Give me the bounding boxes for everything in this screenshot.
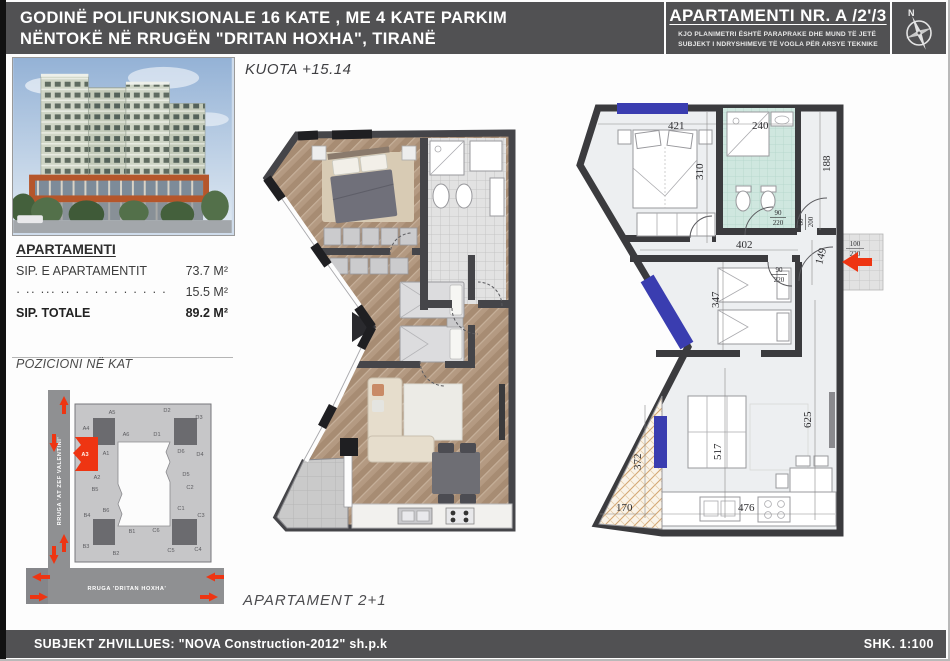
unit-label-B6: B6: [103, 508, 110, 514]
table-heading: APARTAMENTI: [16, 241, 228, 257]
area-row-balcony: · ·· ··· ·· · · · · · · · · · · 15.5 M²: [16, 285, 228, 299]
unit-label-A2: A2: [94, 475, 101, 481]
unit-label-B4: B4: [84, 513, 91, 519]
apartment-number: APARTAMENTI NR. A /2'/3: [669, 6, 886, 26]
compass: N: [892, 2, 946, 54]
street-label-vertical: RRUGA 'AT ZEF VALENTINI': [57, 437, 63, 526]
bathroom-3d: [426, 138, 506, 304]
footer-bar: SUBJEKT ZHVILLUES: "NOVA Construction-20…: [6, 630, 946, 658]
unit-label-A6: A6: [123, 432, 130, 438]
sheet-title: GODINË POLIFUNKSIONALE 16 KATE , ME 4 KA…: [6, 2, 664, 54]
apartment-type-label: APARTAMENT 2+1: [243, 592, 387, 609]
dim-bath-width: 240: [752, 120, 769, 132]
svg-text:100: 100: [850, 240, 861, 248]
disclaimer-line-1: KJO PLANIMETRI ËSHTË PARAPRAKE DHE MUND …: [678, 30, 878, 40]
title-line-2: NËNTOKË NË RRUGËN "DRITAN HOXHA", TIRANË: [20, 29, 664, 50]
unit-label-A4: A4: [83, 426, 90, 432]
apartment-area-table: APARTAMENTI SIP. E APARTAMENTIT 73.7 M² …: [16, 241, 228, 327]
unit-label-B3: B3: [83, 544, 90, 550]
svg-text:200: 200: [807, 216, 815, 227]
dim-bedroom1-depth: 310: [694, 163, 706, 180]
building-photo: [12, 57, 235, 236]
unit-label-C1: C1: [177, 506, 184, 512]
dim-living-depth: 517: [712, 443, 724, 460]
header-bar: GODINË POLIFUNKSIONALE 16 KATE , ME 4 KA…: [6, 2, 946, 54]
elevation-label: KUOTA +15.14: [245, 61, 351, 78]
dim-balcony-width: 170: [616, 502, 633, 514]
building-render: [13, 58, 232, 233]
area-label: · ·· ··· ·· · · · · · · · · · ·: [16, 285, 167, 299]
floor-position-map: RRUGA 'AT ZEF VALENTINI' RRUGA 'DRITAN H…: [10, 383, 235, 625]
compass-icon: N: [898, 5, 940, 51]
svg-text:220: 220: [773, 219, 784, 227]
kitchen-3d: [352, 504, 512, 528]
position-title: POZICIONI NË KAT: [16, 357, 132, 371]
building-footprint: A5D2D3A4A6D1A3A1D6D4A2D5B5C2B6C1B4C3B1C6…: [73, 404, 211, 562]
street-label-horizontal: RRUGA 'DRITAN HOXHA': [88, 586, 167, 592]
dim-bedroom1-width: 421: [668, 120, 685, 132]
unit-label-B5: B5: [92, 487, 99, 493]
unit-label-D6: D6: [177, 449, 184, 455]
svg-text:80: 80: [797, 218, 805, 226]
unit-label-D3: D3: [195, 415, 202, 421]
scale-label: SHK. 1:100: [864, 637, 946, 651]
disclaimer-line-2: SUBJEKT I NDRYSHIMEVE TË VOGLA PËR ARSYE…: [678, 40, 878, 50]
area-row-apartment: SIP. E APARTAMENTIT 73.7 M²: [16, 264, 228, 278]
dim-living-right-depth: 625: [802, 411, 814, 428]
bedroom-1-3d: [312, 146, 417, 245]
unit-label-A1: A1: [103, 451, 110, 457]
apartment-header: APARTAMENTI NR. A /2'/3 KJO PLANIMETRI Ë…: [666, 2, 890, 54]
dim-living-width: 476: [738, 502, 755, 514]
unit-label-D1: D1: [153, 432, 160, 438]
disclaimer: KJO PLANIMETRI ËSHTË PARAPRAKE DHE MUND …: [678, 30, 878, 49]
unit-label-D4: D4: [196, 452, 203, 458]
unit-label-C6: C6: [152, 528, 159, 534]
unit-label-B1: B1: [129, 529, 136, 535]
area-value: 15.5 M²: [186, 285, 228, 299]
unit-label-C2: C2: [186, 485, 193, 491]
dim-bedroom2-depth: 347: [710, 291, 722, 308]
dim-hall-width: 402: [736, 239, 753, 251]
area-value: 73.7 M²: [186, 264, 228, 278]
plan-sheet: GODINË POLIFUNKSIONALE 16 KATE , ME 4 KA…: [0, 0, 950, 661]
rendered-floor-plan: [250, 95, 550, 590]
unit-label-B2: B2: [113, 551, 120, 557]
svg-text:220: 220: [774, 276, 785, 284]
dim-balcony-depth: 372: [632, 454, 644, 471]
area-row-total: SIP. TOTALE 89.2 M²: [16, 306, 228, 320]
area-label: SIP. E APARTAMENTIT: [16, 264, 147, 278]
compass-north-label: N: [908, 8, 915, 18]
developer-label: SUBJEKT ZHVILLUES: "NOVA Construction-20…: [6, 637, 387, 651]
unit-label-C5: C5: [167, 548, 174, 554]
unit-label-C3: C3: [197, 513, 204, 519]
svg-text:90: 90: [776, 266, 784, 274]
unit-label-D5: D5: [182, 472, 189, 478]
car: [17, 215, 43, 223]
unit-label-D2: D2: [163, 408, 170, 414]
area-label: SIP. TOTALE: [16, 306, 90, 320]
unit-label-C4: C4: [194, 547, 201, 553]
unit-label-A3: A3: [81, 452, 88, 458]
svg-text:90: 90: [775, 209, 783, 217]
title-line-1: GODINË POLIFUNKSIONALE 16 KATE , ME 4 KA…: [20, 8, 664, 29]
area-value: 89.2 M²: [186, 306, 228, 320]
technical-floor-plan: 421 240 310 188 402 347 149 517 625 372 …: [565, 100, 895, 590]
unit-label-A5: A5: [109, 410, 116, 416]
dim-bath-depth: 188: [821, 155, 833, 172]
scan-edge: [0, 0, 6, 661]
